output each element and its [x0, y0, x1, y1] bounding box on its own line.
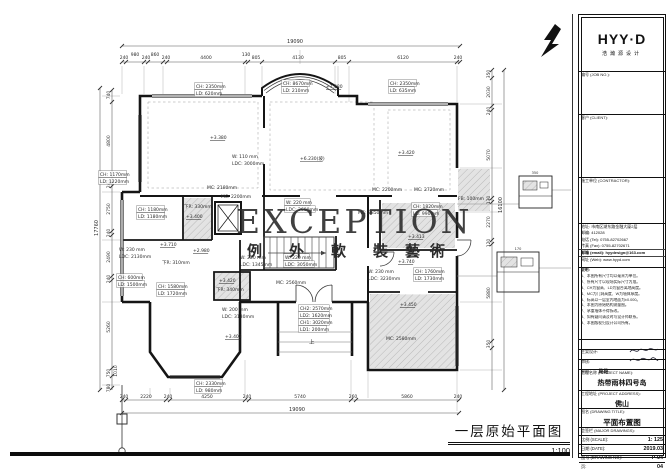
plan-label: 780 — [106, 384, 112, 393]
plan-label: LD1: 200mm — [300, 327, 329, 333]
plan-label: LD: 1220mm — [100, 179, 129, 185]
plan-label: 4250 — [201, 394, 213, 400]
plan-label: CH: 2350mm — [196, 84, 226, 90]
job-no-label: 编号 (JOB NO.): — [579, 72, 665, 78]
plan-label: 下R: 340mm — [216, 287, 244, 293]
plan-label: 240 — [162, 55, 171, 61]
plan-label: 740 — [106, 91, 112, 100]
plan-label: CH: 2330mm — [196, 381, 226, 387]
plan-label: CH2: 2570mm — [300, 306, 333, 312]
plan-label: MC: 2720mm — [414, 187, 444, 193]
plan-label: 17760 — [94, 220, 100, 236]
plan-label: 1010 — [113, 365, 119, 377]
contact-web: 网址 (Web): www.hyyd.com — [579, 257, 665, 263]
job-no-section: 编号 (JOB NO.): — [579, 71, 665, 114]
figure-title-block: 一层原始平面图 1:100 — [448, 420, 570, 455]
plan-label: 260 — [349, 394, 358, 400]
date-row: 日期 (DATE): 2019.03 — [579, 444, 665, 453]
drawing-no-row: 图号 (DRAWING NO): P-04 — [579, 453, 665, 462]
page-label: 页: — [581, 464, 586, 470]
note-line: 9、本图版权归设计公司所有。 — [579, 321, 665, 327]
plan-label: +3.710 — [160, 242, 177, 248]
contact-email: 邮箱 (email): hyydesign@163.com — [579, 249, 665, 257]
plan-label: W: 110 mm — [232, 154, 258, 160]
plan-label: 下R: 310mm — [162, 260, 190, 266]
project-addr-label: 工程地址 (PROJECT ADDRESS): — [579, 391, 665, 397]
plan-label: 240 — [454, 394, 463, 400]
plan-label: 5880 — [486, 287, 492, 299]
plan-label: 805 — [252, 55, 261, 61]
contact-section: 地址: 市南区湖东路金融大厦2层 邮编: 412028 电话 (Tel): 07… — [579, 223, 665, 267]
scale-label: 比例 (SCALE): — [581, 437, 608, 443]
plan-label: 5860 — [401, 394, 413, 400]
ceiling-dashed-lines — [148, 102, 450, 190]
plan-label: 130 — [242, 52, 251, 58]
company-logo: HYY·D — [579, 31, 665, 47]
plan-label: CH: 1760mm — [415, 269, 445, 275]
drawing-sheet: 1909024098024086024044001308054130805612… — [0, 0, 670, 474]
svg-text:例: 例 — [247, 242, 262, 260]
plan-label: 860 — [151, 52, 160, 58]
project-name-label: 工程名称 (PROJECT NAME): — [579, 370, 665, 376]
plan-label: 5740 — [294, 394, 306, 400]
floor-plan: 1909024098024086024044001308054130805612… — [0, 0, 670, 474]
date-value: 2019.03 — [644, 446, 664, 452]
plan-label: W: 200 mm — [222, 307, 248, 313]
plan-label: 16100 — [498, 197, 504, 213]
plan-label: 2270 — [486, 216, 492, 228]
plan-label: 2030 — [486, 86, 492, 98]
project-name-value: 热带雨林四号岛 — [579, 378, 665, 388]
plan-label: 6120 — [397, 55, 409, 61]
plan-label: 240 — [486, 107, 492, 116]
plan-label: 4130 — [292, 55, 304, 61]
plan-label: 240 — [106, 275, 112, 284]
sign-row-checker: 审核: — [579, 349, 665, 359]
plan-label: +3.420 — [398, 150, 415, 156]
plan-label: LDC: 3050mm — [285, 262, 317, 268]
plan-label: 下R: 330mm — [184, 204, 212, 210]
drawing-title-value: 平面布置图 — [579, 417, 665, 428]
plan-label: LDC: 3130mm — [222, 314, 254, 320]
plan-label: 980 — [131, 52, 140, 58]
plan-label: 240 — [106, 229, 112, 238]
plan-label: 130 — [486, 196, 492, 205]
plan-label: 4400 — [200, 55, 212, 61]
plan-label: +3.380 — [210, 135, 227, 141]
plan-label: 2490 — [106, 251, 112, 263]
plan-label: 240 — [164, 394, 173, 400]
plan-label: 4800 — [106, 135, 112, 147]
plan-label: 上 — [309, 338, 315, 346]
countersign-label: 会签栏 (MAJOR DRAWINGS): — [579, 428, 665, 434]
client-label: 客户 (CLIENT): — [579, 115, 665, 121]
svg-text:外: 外 — [288, 242, 304, 260]
separator-line — [572, 14, 573, 458]
figure-title: 一层原始平面图 — [448, 420, 570, 445]
plan-label: LD: 1180mm — [138, 214, 167, 220]
plan-label: CH: 1170mm — [100, 172, 130, 178]
project-name-section: 工程名称 (PROJECT NAME): 热带雨林四号岛 — [579, 369, 665, 390]
bottom-bar — [10, 452, 570, 456]
scale-row: 比例 (SCALE): 1: 125 — [579, 435, 665, 444]
plan-label: LD: 1500mm — [118, 282, 147, 288]
plan-label: 350 — [532, 171, 539, 175]
sign-row-drafter: 制图: 路路 — [579, 359, 665, 369]
plan-label: 170 — [515, 247, 522, 251]
plan-label: +3.450 — [400, 302, 417, 308]
contractor-label: 施工单位 (CONTRACTOR): — [579, 178, 665, 184]
contractor-section: 施工单位 (CONTRACTOR): — [579, 177, 665, 223]
plan-label: 350 — [486, 340, 492, 349]
plan-label: MC: 2580mm — [386, 336, 416, 342]
plan-label: +3.400 — [186, 214, 203, 220]
plan-label: 5070 — [486, 149, 492, 161]
detail-callout-b — [457, 252, 571, 292]
plan-label: CH: 2350mm — [390, 81, 420, 87]
plan-label: LDC: 2130mm — [119, 254, 151, 260]
svg-text:術: 術 — [429, 242, 445, 260]
plan-label: +6.230(坡) — [300, 155, 325, 162]
plan-label: CH: 1180mm — [138, 207, 168, 213]
plan-label: 750 — [106, 369, 112, 378]
plan-label: CH1: 3020mm — [300, 320, 333, 326]
plan-label: CH: 8670mm — [283, 81, 313, 87]
plan-label: +7.380 — [326, 84, 343, 90]
plan-label: LDC: 3230mm — [368, 276, 400, 282]
plan-label: LDC: 1345mm — [240, 262, 272, 268]
plan-label: +3.420 — [219, 278, 236, 284]
plan-label: 240 — [454, 55, 463, 61]
page-row: 页: 04 — [579, 462, 665, 472]
plan-label: LD: 210mm — [283, 88, 309, 94]
plan-label: +2.980 — [193, 248, 210, 254]
countersign-section: 会签栏 (MAJOR DRAWINGS): — [579, 427, 665, 435]
plan-label: MC: 2200mm — [372, 187, 402, 193]
plan-label: MC: 2200mm — [221, 194, 251, 200]
plan-label: 2220 — [140, 394, 152, 400]
svg-text:軟: 軟 — [331, 242, 347, 260]
client-section: 客户 (CLIENT): — [579, 114, 665, 177]
logo-area: HYY·D 浩瀚源设计 — [579, 15, 665, 57]
notes-section: 说明: 1、本图所有尺寸均以毫米为单位。 2、所有尺寸以现场实际尺寸为准。 3、… — [579, 267, 665, 339]
sign-row-designer: 主案设计: — [579, 339, 665, 349]
watermark-en: EXCEPTION — [236, 202, 473, 241]
plan-label: LD: 635mm — [390, 88, 416, 94]
plan-label: 2750 — [106, 203, 112, 215]
date-label: 日期 (DATE): — [581, 446, 605, 452]
plan-label: LD2: 1620mm — [300, 313, 332, 319]
plan-label: 5260 — [106, 321, 112, 333]
plan-label: 19090 — [287, 39, 303, 45]
plan-label: LD: 980mm — [196, 388, 222, 394]
plan-label: LD: 1730mm — [415, 276, 444, 282]
plan-label: 805 — [338, 55, 347, 61]
svg-text:藝: 藝 — [405, 242, 420, 260]
plan-label: LD: 1720mm — [158, 291, 187, 297]
plan-label: +3.403 — [225, 334, 242, 340]
plan-label: LD: 620mm — [196, 91, 222, 97]
drawing-no-label: 图号 (DRAWING NO): — [581, 455, 622, 461]
title-block: HYY·D 浩瀚源设计 编号 (JOB NO.): 客户 (CLIENT): 施… — [578, 14, 666, 458]
plan-label: 350 — [486, 70, 492, 79]
plan-label: MC: 2560mm — [276, 280, 306, 286]
plan-label: W: 230 mm — [368, 269, 394, 275]
drawing-title-section: 图名 (DRAWING TITLE): 平面布置图 — [579, 408, 665, 427]
plan-label: LDC: 3000mm — [232, 161, 264, 167]
north-arrow-icon — [541, 24, 561, 57]
plan-label: 120 — [486, 239, 492, 248]
plan-label: 240 — [120, 55, 129, 61]
plan-label: 240 — [120, 394, 129, 400]
project-addr-section: 工程地址 (PROJECT ADDRESS): 佛山 — [579, 390, 665, 408]
svg-text:裝: 裝 — [372, 242, 389, 260]
plan-label: 19090 — [289, 407, 305, 413]
company-logo-sub: 浩瀚源设计 — [579, 50, 665, 57]
watermark: EXCEPTION 例 外 軟 裝 藝 術 — [236, 202, 473, 260]
page-value: 04 — [657, 464, 663, 470]
plan-label: 240 — [142, 55, 151, 61]
drawing-no-value: P-04 — [652, 455, 663, 461]
plan-label: W: 230 mm — [119, 247, 145, 253]
drawing-title-label: 图名 (DRAWING TITLE): — [579, 409, 665, 415]
plan-label: CH: 1580mm — [158, 284, 188, 290]
plan-label: MC: 2180mm — [207, 185, 237, 191]
plan-label: CH: 600mm — [118, 275, 145, 281]
scale-value: 1: 125 — [648, 437, 663, 443]
plan-label: 240 — [243, 394, 252, 400]
